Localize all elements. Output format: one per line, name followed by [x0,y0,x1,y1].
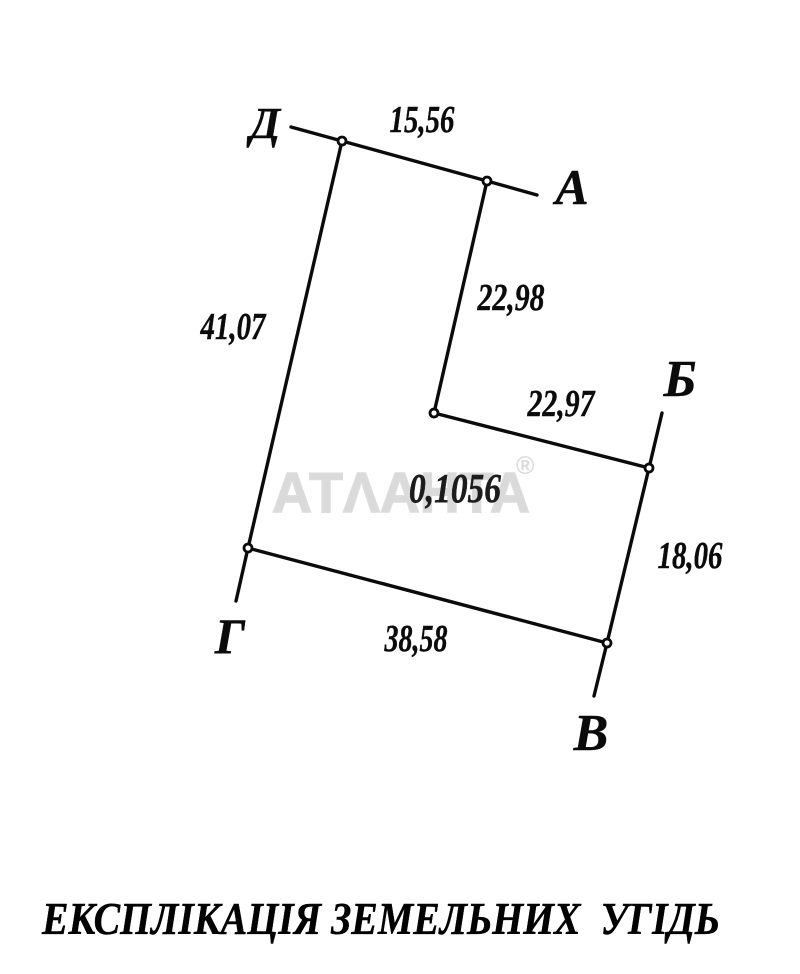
svg-text:38,58: 38,58 [384,618,448,660]
svg-text:22,98: 22,98 [477,277,545,319]
svg-text:Г: Г [214,608,246,664]
svg-text:ЕКСПЛІКАЦІЯ ЗЕМЕЛЬНИХ УГІДЬ: ЕКСПЛІКАЦІЯ ЗЕМЕЛЬНИХ УГІДЬ [41,894,720,944]
svg-text:В: В [573,705,609,762]
svg-text:18,06: 18,06 [658,535,723,577]
svg-text:Б: Б [662,351,696,408]
svg-text:22,97: 22,97 [527,383,596,425]
svg-text:Д: Д [246,99,282,148]
svg-text:®: ® [516,452,535,480]
svg-text:15,56: 15,56 [390,99,455,141]
svg-text:0,1056: 0,1056 [409,465,501,511]
svg-text:А: А [552,159,588,215]
svg-text:41,07: 41,07 [200,306,267,348]
